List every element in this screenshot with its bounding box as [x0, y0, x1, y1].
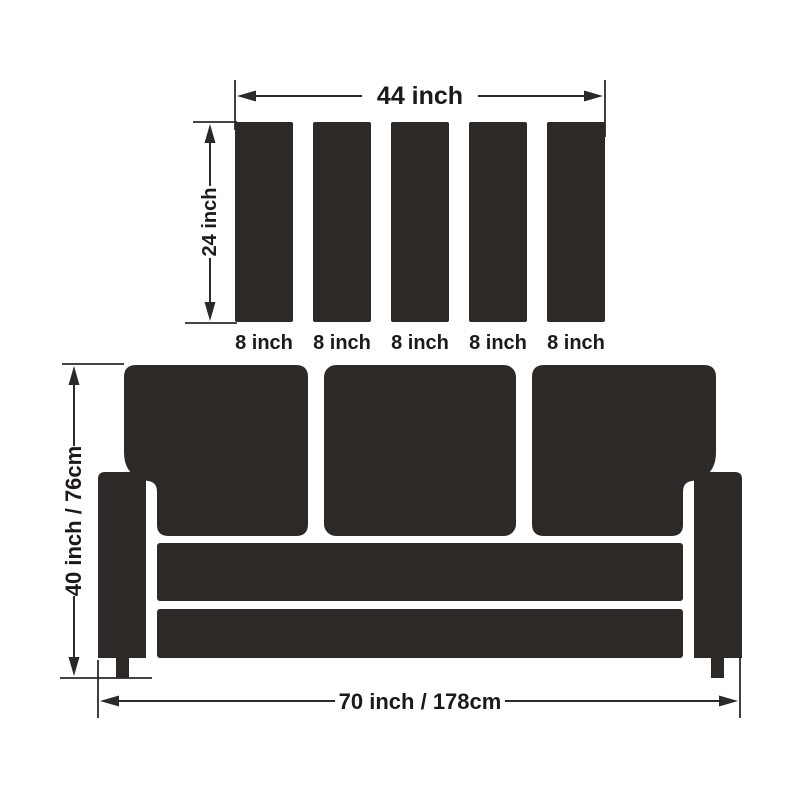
dimension-diagram-canvas: 44 inch 24 inch 8 inch 8 inch 8 inch 8 i… — [0, 0, 800, 800]
arrow-up-icon — [69, 366, 80, 385]
arrow-down-icon — [69, 657, 80, 676]
panel-3-label: 8 inch — [391, 332, 449, 354]
panel-width-label: 44 inch — [377, 82, 463, 110]
arrow-right-icon — [719, 696, 738, 707]
sofa-leg-left — [116, 658, 129, 678]
panel-3 — [391, 122, 449, 322]
panel-2 — [313, 122, 371, 322]
sofa-seat-cushion-band — [157, 543, 683, 601]
panel-1 — [235, 122, 293, 322]
panel-5 — [547, 122, 605, 322]
arrow-up-icon — [205, 124, 216, 143]
sofa-back-cushion-middle — [324, 365, 516, 536]
sofa-back-cushion-right — [532, 365, 716, 536]
sofa-width-dimension: 70 inch / 178cm — [98, 652, 740, 718]
panel-section: 44 inch 24 inch 8 inch 8 inch 8 inch 8 i… — [185, 80, 605, 354]
arrow-right-icon — [584, 91, 603, 102]
panel-1-label: 8 inch — [235, 332, 293, 354]
sofa-base-band — [157, 609, 683, 658]
product-dimension-diagram: 44 inch 24 inch 8 inch 8 inch 8 inch 8 i… — [0, 0, 800, 800]
sofa-height-label: 40 inch / 76cm — [61, 446, 86, 596]
panel-4 — [469, 122, 527, 322]
sofa-armrest-right — [694, 472, 742, 658]
panel-height-dimension: 24 inch — [185, 122, 237, 323]
sofa-leg-right — [711, 658, 724, 678]
panel-4-label: 8 inch — [469, 332, 527, 354]
arrow-down-icon — [205, 302, 216, 321]
arrow-left-icon — [237, 91, 256, 102]
sofa-back-cushion-left — [124, 365, 308, 536]
panel-2-label: 8 inch — [313, 332, 371, 354]
sofa-armrest-left — [98, 472, 146, 658]
panel-5-label: 8 inch — [547, 332, 605, 354]
sofa-section: 40 inch / 76cm 70 inch / 178cm — [60, 364, 742, 718]
panel-height-label: 24 inch — [199, 188, 221, 257]
arrow-left-icon — [100, 696, 119, 707]
sofa-width-label: 70 inch / 178cm — [339, 689, 502, 714]
panel-width-labels: 8 inch 8 inch 8 inch 8 inch 8 inch — [235, 332, 605, 354]
